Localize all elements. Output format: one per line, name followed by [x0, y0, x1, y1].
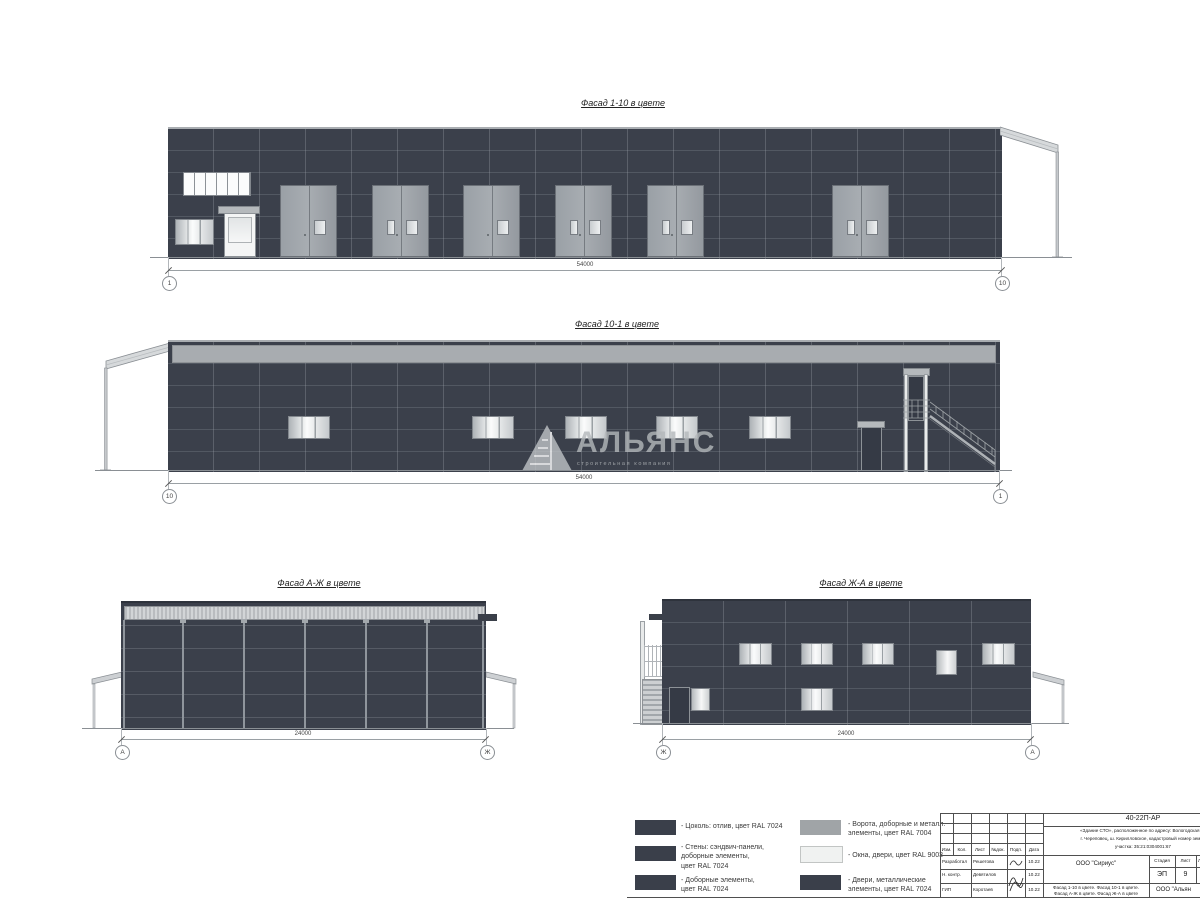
- gate-window: [681, 220, 693, 235]
- window: [862, 643, 894, 665]
- org-name: ООО "Альян: [1156, 887, 1200, 893]
- entrance-door-glass: [228, 217, 252, 243]
- stamp-line: [1149, 867, 1200, 868]
- metal-door: [861, 427, 882, 471]
- column-line: [365, 620, 367, 728]
- axis-leader: [999, 470, 1000, 489]
- gate-window: [497, 220, 509, 235]
- column-cap: [180, 619, 186, 623]
- sheet-frame-line: [627, 897, 1200, 898]
- stamp-line: [1196, 855, 1197, 883]
- column-cap: [302, 619, 308, 623]
- axis-marker: А: [115, 745, 130, 760]
- facade-a-zh-title: Фасад А-Ж в цвете: [219, 578, 419, 588]
- gate-handle: [856, 234, 858, 236]
- gate-split: [492, 186, 493, 256]
- stage-label: Стадия: [1149, 858, 1175, 864]
- sheet-value: 9: [1175, 871, 1196, 878]
- dimension-label: 54000: [535, 262, 635, 268]
- stair-canopy: [649, 614, 663, 620]
- legend-swatch: [635, 875, 676, 890]
- window: [472, 416, 514, 439]
- corrugated-band: [124, 606, 485, 620]
- ground-line: [82, 728, 514, 729]
- axis-marker: Ж: [480, 745, 495, 760]
- address-line: г. Череповец, ш. Кирилловское, кадастров…: [1046, 836, 1200, 842]
- exterior-stair: [898, 392, 1002, 476]
- legend-swatch: [800, 875, 841, 890]
- legend-swatch: [635, 820, 676, 835]
- legend-label: - Цоколь: отлив, цвет RAL 7024: [681, 822, 796, 831]
- stamp-header: Дата: [1025, 847, 1043, 853]
- gate-window: [847, 220, 855, 235]
- gate-window: [570, 220, 578, 235]
- column-line: [243, 620, 245, 728]
- stamp-role: Н. контр.: [942, 872, 972, 878]
- org-name: ООО "Сириус": [1043, 861, 1149, 867]
- stage-value: ЭП: [1149, 871, 1175, 878]
- dimension-line: [121, 739, 486, 740]
- side-canopy: [1000, 123, 1074, 261]
- dimension-line: [168, 483, 1000, 484]
- facade-1-10-title: Фасад 1-10 в цвете: [523, 98, 723, 108]
- dimension-label: 54000: [534, 475, 634, 481]
- axis-leader: [662, 723, 663, 745]
- legend-swatch: [800, 846, 843, 863]
- column-line: [123, 620, 125, 728]
- gate-split: [676, 186, 677, 256]
- address-line: «Здание СТО», расположенное по адресу: В…: [1046, 828, 1200, 834]
- column-line: [304, 620, 306, 728]
- axis-marker: А: [1025, 745, 1040, 760]
- legend-swatch: [635, 846, 676, 861]
- stamp-line: [971, 813, 972, 897]
- gate-window: [314, 220, 326, 235]
- stamp-header: Лист: [971, 847, 989, 853]
- side-canopy: [1031, 668, 1067, 726]
- window: [982, 643, 1015, 665]
- axis-leader: [168, 257, 169, 276]
- signature: [1006, 870, 1025, 895]
- dimension-label: 24000: [796, 731, 896, 737]
- stamp-date: 10.22: [1025, 872, 1043, 878]
- stamp-header: Кол.: [953, 847, 971, 853]
- window: [801, 688, 833, 711]
- gate-window: [406, 220, 418, 235]
- stamp-line: [1025, 813, 1026, 897]
- drawing-sheet: Фасад 1-10 в цвете: [0, 0, 1200, 900]
- facade-10-1-title: Фасад 10-1 в цвете: [517, 319, 717, 329]
- axis-marker: 10: [162, 489, 177, 504]
- watermark-logo: [520, 424, 572, 472]
- stamp-name: Решетова: [973, 859, 1006, 865]
- gate-window: [387, 220, 395, 235]
- gate-window: [866, 220, 878, 235]
- dimension-line: [662, 739, 1031, 740]
- window: [801, 643, 833, 665]
- stamp-line: [940, 813, 1200, 814]
- window: [749, 416, 791, 439]
- side-canopy: [94, 336, 174, 474]
- stamp-header: Изм.: [940, 847, 953, 853]
- stamp-date: 10.22: [1025, 859, 1043, 865]
- facade-zh-a-title: Фасад Ж-А в цвете: [761, 578, 961, 588]
- stamp-line: [940, 833, 1043, 834]
- stamp-line: [940, 823, 1043, 824]
- axis-marker: 1: [162, 276, 177, 291]
- gate: [280, 185, 337, 257]
- column-line: [426, 620, 428, 728]
- stamp-name: Коротаев: [973, 887, 1006, 893]
- entrance-door: [224, 213, 256, 257]
- legend-label: - Доборные элементы, цвет RAL 7024: [681, 876, 796, 895]
- dimension-label: 24000: [253, 731, 353, 737]
- gate: [463, 185, 520, 257]
- gate-split: [401, 186, 402, 256]
- side-canopy: [90, 666, 124, 730]
- content-line: Фасад А-Ж в цвете. Фасад Ж-А в цвете: [1045, 891, 1147, 897]
- gate-split: [861, 186, 862, 256]
- stamp-line: [940, 883, 1200, 884]
- stamp-line: [940, 843, 1043, 844]
- gate-handle: [396, 234, 398, 236]
- column-cap: [424, 619, 430, 623]
- content-line: Фасад 1-10 в цвете. Фасад 10-1 в цвете.: [1045, 885, 1147, 891]
- gate-handle: [304, 234, 306, 236]
- ground-line: [633, 723, 1069, 724]
- stamp-role: ГИП: [942, 887, 972, 893]
- stamp-line: [1043, 826, 1200, 827]
- stamp-line: [940, 855, 1200, 856]
- stamp-role: Разработал: [942, 859, 972, 865]
- stamp-header: Подп.: [1007, 847, 1025, 853]
- gate-window: [589, 220, 601, 235]
- window: [691, 688, 710, 711]
- side-canopy: [484, 666, 518, 730]
- column-cap: [241, 619, 247, 623]
- facade-zh-a-wall: [662, 599, 1031, 725]
- watermark-subtext: строительная компания: [577, 461, 672, 467]
- axis-marker: Ж: [656, 745, 671, 760]
- gate-handle: [487, 234, 489, 236]
- metal-door: [669, 687, 690, 724]
- stamp-name: Девятилов: [973, 872, 1006, 878]
- window: [288, 416, 330, 439]
- axis-marker: 10: [995, 276, 1010, 291]
- sheet-label: Лист: [1175, 858, 1196, 864]
- stamp-header: №док.: [989, 847, 1007, 853]
- gutter-box: [478, 614, 497, 621]
- column-cap: [363, 619, 369, 623]
- column-line: [482, 620, 484, 728]
- ground-line: [150, 257, 1072, 258]
- legend-swatch: [800, 820, 841, 835]
- gate-handle: [579, 234, 581, 236]
- window: [936, 650, 957, 675]
- column-line: [182, 620, 184, 728]
- gate: [555, 185, 612, 257]
- parapet-band: [172, 345, 996, 363]
- gate: [372, 185, 429, 257]
- dimension-line: [168, 270, 1002, 271]
- gate-split: [584, 186, 585, 256]
- gate-handle: [671, 234, 673, 236]
- ribbon-window: [183, 172, 251, 196]
- stair-railing-grid: [644, 645, 663, 677]
- signature: [1008, 857, 1024, 868]
- gate: [647, 185, 704, 257]
- axis-leader: [1001, 257, 1002, 276]
- ground-line: [95, 470, 1012, 471]
- doc-number: 40-22П-АР: [1043, 815, 1200, 822]
- watermark-text: АЛЬЯНС: [576, 426, 716, 460]
- axis-leader: [1031, 723, 1032, 745]
- window: [175, 219, 214, 245]
- gate-window: [662, 220, 670, 235]
- address-line: участка: 35:21:0304001:67: [1046, 844, 1200, 850]
- legend-label: - Стены: сэндвич-панели, доборные элемен…: [681, 843, 796, 871]
- axis-leader: [168, 470, 169, 489]
- gate-split: [309, 186, 310, 256]
- stamp-line: [940, 869, 1043, 870]
- axis-marker: 1: [993, 489, 1008, 504]
- window: [739, 643, 772, 665]
- gate: [832, 185, 889, 257]
- stair-stringer: [642, 679, 664, 725]
- stamp-date: 10.22: [1025, 887, 1043, 893]
